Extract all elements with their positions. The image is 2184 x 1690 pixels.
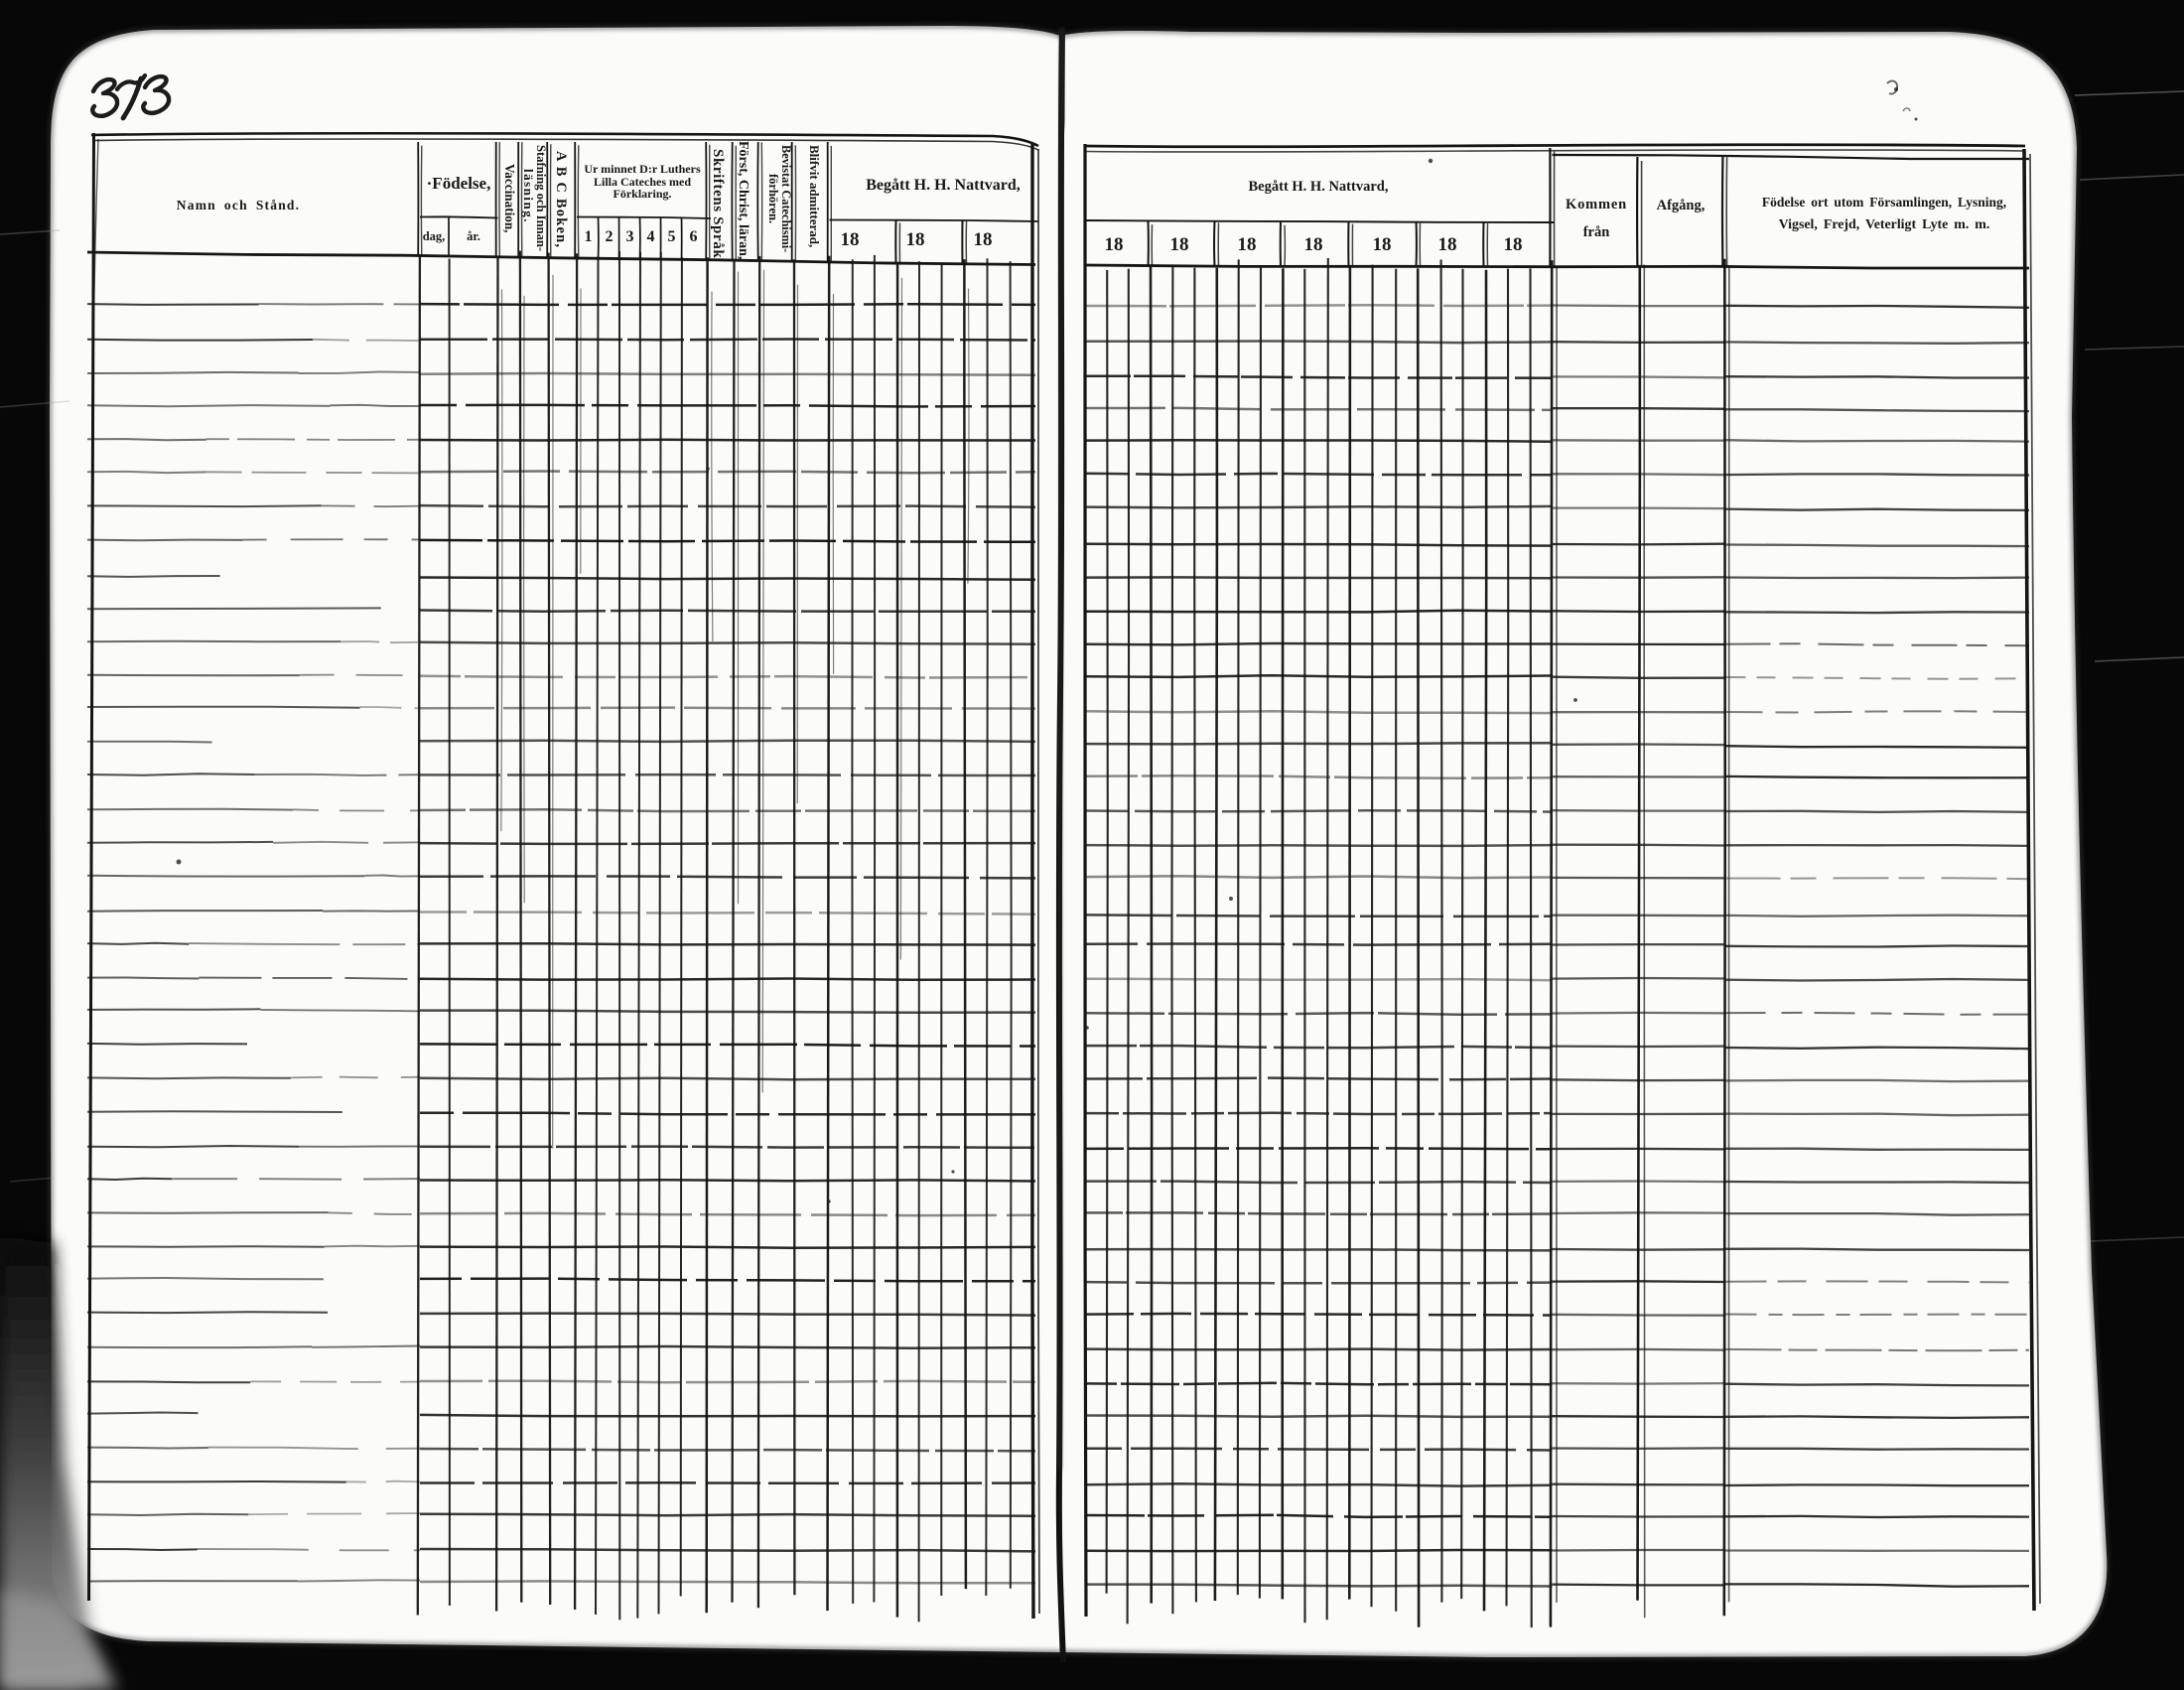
svg-text:Vaccination,: Vaccination, (502, 164, 517, 232)
svg-text:Bevistat Catechismi-: Bevistat Catechismi- (779, 145, 793, 252)
svg-text:förhören.: förhören. (766, 174, 780, 223)
svg-text:18: 18 (1238, 234, 1257, 255)
svg-text:Blifvit admitterad,: Blifvit admitterad, (807, 145, 822, 247)
svg-text:18: 18 (1304, 234, 1323, 255)
svg-text:Afgång,: Afgång, (1657, 198, 1706, 213)
svg-text:18: 18 (841, 229, 860, 250)
svg-text:Ur minnet D:r Luthers: Ur minnet D:r Luthers (584, 162, 701, 176)
svg-text:dag,: dag, (423, 229, 446, 243)
svg-text:18: 18 (1373, 234, 1392, 255)
svg-text:18: 18 (1105, 234, 1124, 255)
svg-text:18: 18 (906, 229, 925, 250)
svg-text:3: 3 (626, 228, 634, 245)
svg-text:Begått H. H. Nattvard,: Begått H. H. Nattvard, (866, 177, 1021, 194)
svg-text:Vigsel, Frejd, Veterligt Lyte: Vigsel, Frejd, Veterligt Lyte m. m. (1779, 217, 1990, 232)
svg-text:A B C Boken,: A B C Boken, (553, 151, 569, 248)
svg-text:5: 5 (668, 228, 676, 245)
svg-text:Förklaring.: Förklaring. (614, 187, 672, 201)
svg-text:1: 1 (585, 228, 593, 245)
svg-text:Födelse ort utom Församlingen,: Födelse ort utom Församlingen, Lysning, (1762, 195, 2006, 210)
svg-text:18: 18 (1504, 234, 1523, 255)
svg-text:18: 18 (974, 229, 993, 250)
svg-text:2: 2 (606, 228, 614, 245)
svg-text:4: 4 (647, 228, 655, 245)
svg-text:Kommen: Kommen (1566, 197, 1627, 212)
svg-text:18: 18 (1170, 234, 1189, 255)
svg-text:Namn och Stånd.: Namn och Stånd. (177, 198, 300, 212)
svg-text:Skriftens Språk: Skriftens Språk (710, 149, 726, 258)
svg-text:Begått H. H. Nattvard,: Begått H. H. Nattvard, (1249, 179, 1389, 195)
svg-text:från: från (1583, 224, 1610, 240)
svg-text:18: 18 (1438, 234, 1457, 255)
svg-text:läsning.: läsning. (521, 169, 536, 223)
svg-text:6: 6 (690, 228, 698, 245)
svg-text:år.: år. (467, 229, 480, 243)
svg-text:Först, Christ, läran,: Först, Christ, läran, (736, 141, 751, 259)
svg-text:·Födelse,: ·Födelse, (427, 174, 491, 193)
